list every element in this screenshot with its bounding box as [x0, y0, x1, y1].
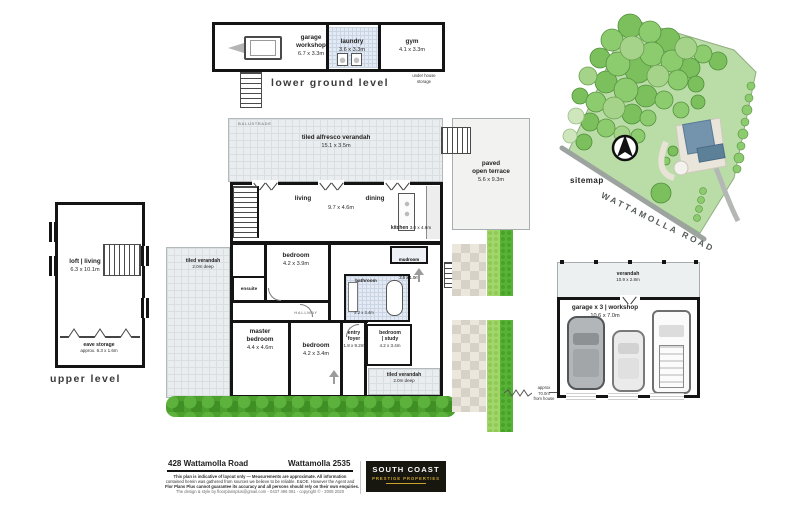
- room-name: dining: [358, 195, 392, 203]
- connector-line: [549, 392, 557, 393]
- room-label-gym: gym 4.1 x 3.3m: [388, 38, 436, 54]
- footer-divider: [360, 461, 361, 494]
- agency-logo: SOUTH COAST PRESTIGE PROPERTIES: [366, 461, 446, 492]
- room-dim: 4.1 x 3.3m: [388, 46, 436, 54]
- room-name: bedroom: [292, 342, 340, 350]
- vanity-icon: [348, 282, 358, 312]
- verandah-post: [662, 260, 666, 264]
- room-dim: 5.6 x 9.3m: [460, 176, 522, 184]
- room-label-study: bedroom | study 4.2 x 3.4m: [368, 330, 412, 349]
- entry-arrow-icon: [329, 370, 339, 384]
- room-dim: 3.6 x 3.3m: [326, 46, 378, 54]
- hedge-strip-dark: [500, 230, 513, 432]
- vehicle-suv-dark: [567, 316, 605, 390]
- dryer-icon: [351, 53, 362, 66]
- wall-partition: [378, 24, 381, 70]
- room-name: paved open terrace: [460, 160, 522, 176]
- room-dim: 4.4 x 4.6m: [234, 344, 286, 352]
- room-label-verandah-left: tiled verandah 2.0m deep: [178, 258, 228, 271]
- north-arrow-icon: [613, 135, 637, 160]
- agency-logo-top: SOUTH COAST: [366, 465, 446, 474]
- break-line-icon: [504, 389, 532, 397]
- verandah-post: [560, 260, 564, 264]
- verandah-post: [594, 260, 598, 264]
- room-dim: 15.1 x 3.5m: [300, 142, 372, 150]
- window-icon: [49, 256, 57, 276]
- footer-rule: [167, 470, 353, 472]
- vehicle-roof: [618, 358, 639, 379]
- side-entry-arrow-icon: [414, 268, 424, 282]
- path-crossing-gap: [450, 296, 516, 320]
- balustrade-label: BALUSTRADE: [238, 121, 272, 126]
- sitemap-graphic: [548, 6, 790, 254]
- window-icon: [141, 298, 149, 318]
- paved-path: [452, 244, 486, 412]
- room-label-dining: dining: [358, 195, 392, 203]
- room-label-eave-storage: eave storage approx. 6.3 x 1.6m: [66, 342, 132, 355]
- room-name: garage x 3 | workshop: [562, 304, 648, 312]
- floor-plan-page: garage workshop 6.7 x 3.3m laundry 3.6 x…: [0, 0, 800, 510]
- garage-door-opening: [566, 393, 596, 400]
- room-dim: 6.3 x 10.1m: [58, 266, 112, 274]
- sitemap-label: sitemap: [570, 176, 604, 185]
- internal-stairs: [233, 186, 259, 238]
- room-label-alfresco: tiled alfresco verandah 15.1 x 3.5m: [300, 134, 372, 150]
- room-dim: 1.8 x 9.2m: [342, 343, 366, 350]
- room-name: bedroom: [270, 252, 322, 260]
- lower-ground-stairs: [240, 72, 262, 108]
- room-name: tiled alfresco verandah: [300, 134, 372, 142]
- kitchen-counter: [426, 186, 440, 239]
- property-locality: Wattamolla 2535: [288, 459, 350, 468]
- hedge-strip-light: [487, 230, 500, 432]
- property-address: 428 Wattamolla Road: [168, 459, 248, 468]
- vehicle-car-light: [612, 330, 645, 392]
- room-label-bathroom: bathroom: [350, 278, 382, 284]
- room-label-kitchen: kitchen 3.0 x 4.6m: [380, 225, 442, 231]
- room-label-verandah-bottom: tiled verandah 2.0m deep: [374, 372, 434, 385]
- room-dim: 4.2 x 3.4m: [368, 343, 412, 350]
- verandah-post: [628, 260, 632, 264]
- window-icon: [141, 246, 149, 266]
- arrow-stem: [418, 275, 421, 282]
- room-dim: 2.0m deep: [178, 264, 228, 271]
- room-dim: 4.2 x 3.4m: [292, 350, 340, 358]
- room-name: kitchen: [391, 225, 409, 231]
- vehicle-windshield: [618, 343, 639, 354]
- room-name: mudroom: [399, 257, 419, 262]
- vehicle-ute: [652, 310, 691, 394]
- room-label-bedroom1: bedroom 4.2 x 3.9m: [270, 252, 322, 268]
- room-label-terrace: paved open terrace 5.6 x 9.3m: [460, 160, 522, 184]
- wall-partition: [328, 244, 331, 322]
- room-name: gym: [388, 38, 436, 46]
- upper-level-title: upper level: [50, 373, 121, 385]
- window-icon: [49, 222, 57, 242]
- room-label-loft: loft | living 6.3 x 10.1m: [58, 258, 112, 274]
- room-label-living: living: [288, 195, 318, 203]
- bathroom-dim: 4.2 x 3.4m: [348, 310, 380, 316]
- distance-note: approx 70.0m from house: [531, 385, 557, 402]
- terrace-stairs: [441, 127, 471, 154]
- room-name: loft | living: [58, 258, 112, 266]
- agency-logo-underline: [386, 483, 426, 485]
- vehicle-windshield: [573, 333, 599, 345]
- wall-partition: [288, 322, 291, 398]
- eave-chevrons-icon: [60, 328, 140, 338]
- room-name: living: [288, 195, 318, 203]
- room-label-bedroom2: bedroom 4.2 x 3.4m: [292, 342, 340, 358]
- vehicle-cab-glass: [659, 325, 684, 337]
- room-name: master bedroom: [234, 328, 286, 344]
- room-name: bedroom | study: [368, 330, 412, 343]
- verandah-post: [694, 260, 698, 264]
- room-label-master-bedroom: master bedroom 4.4 x 4.6m: [234, 328, 286, 352]
- bathtub-icon: [386, 280, 403, 316]
- deck-circle: [674, 161, 688, 175]
- garage-door-opening: [650, 393, 684, 400]
- arrow-stem: [333, 377, 336, 384]
- vehicle-tray: [659, 345, 684, 388]
- room-dim: 4.2 x 3.9m: [270, 260, 322, 268]
- room-dim: 2.0m deep: [374, 378, 434, 385]
- room-dim: 9.7 x 4.6m: [320, 204, 362, 212]
- room-name: laundry: [326, 38, 378, 46]
- vehicle-roof: [573, 349, 599, 377]
- arrow-head: [329, 370, 339, 377]
- trailer-hitch-icon: [228, 43, 244, 53]
- front-hedge: [166, 396, 456, 417]
- room-label-laundry: laundry 3.6 x 3.3m: [326, 38, 378, 54]
- room-label-ensuite: ensuite: [234, 286, 264, 292]
- garage-door-opening: [608, 393, 638, 400]
- trailer-inner: [250, 40, 276, 56]
- living-dining-dim: 9.7 x 4.6m: [320, 204, 362, 212]
- disclaimer-line: The design & style by floorplansplus@gma…: [165, 489, 355, 494]
- room-dim: 10.9 x 2.8m: [600, 277, 656, 284]
- lower-ground-title: lower ground level: [271, 77, 389, 89]
- room-dim: approx. 6.3 x 1.6m: [66, 348, 132, 355]
- arrow-head: [414, 268, 424, 275]
- under-house-storage-note: under house storage: [406, 73, 442, 84]
- agency-logo-bottom: PRESTIGE PROPERTIES: [366, 476, 446, 481]
- room-label-garage-verandah: verandah 10.9 x 2.8m: [600, 271, 656, 284]
- room-dim: 3.0 x 4.6m: [410, 225, 431, 230]
